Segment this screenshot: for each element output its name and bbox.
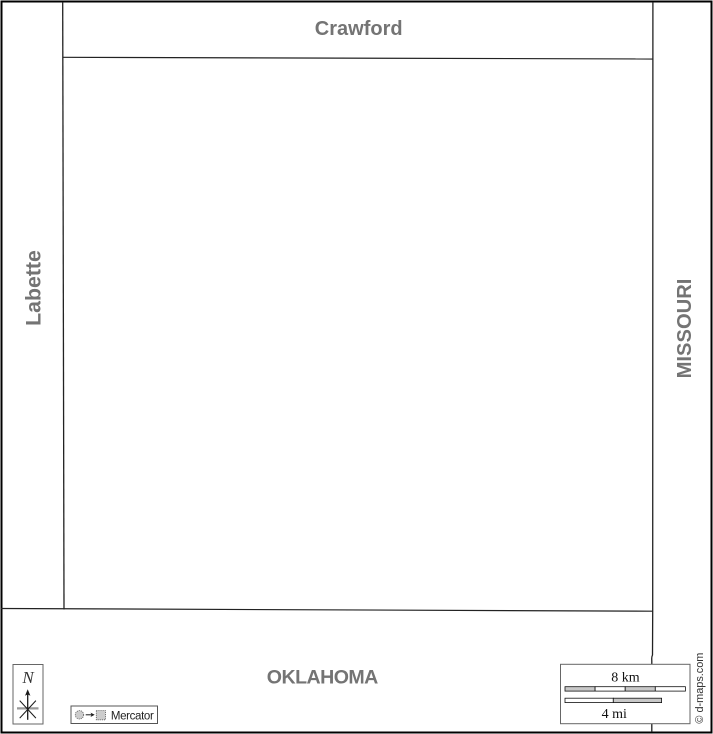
svg-text:MISSOURI: MISSOURI — [674, 279, 696, 379]
svg-text:OKLAHOMA: OKLAHOMA — [267, 667, 378, 689]
svg-text:Crawford: Crawford — [315, 18, 403, 40]
svg-text:N: N — [21, 668, 35, 687]
svg-text:8 km: 8 km — [611, 671, 640, 686]
svg-text:Mercator: Mercator — [111, 710, 154, 722]
svg-text:4 mi: 4 mi — [602, 707, 627, 722]
svg-text:© d-maps.com: © d-maps.com — [694, 653, 706, 724]
svg-text:Labette: Labette — [21, 250, 45, 326]
